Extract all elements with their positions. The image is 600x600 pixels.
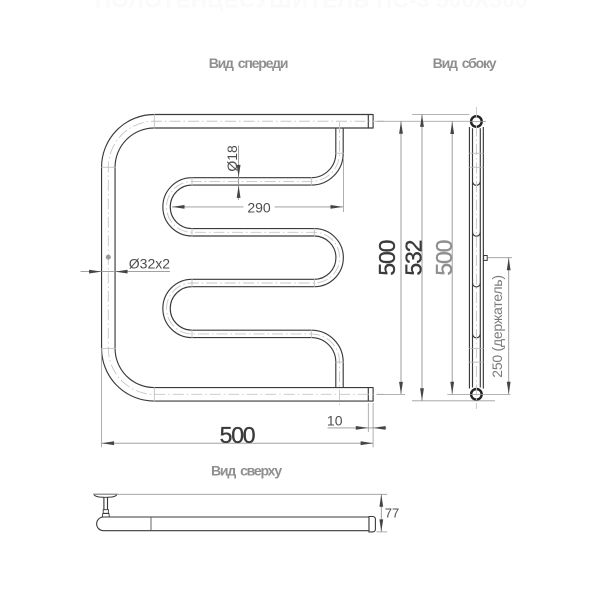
svg-text:500: 500 [374, 240, 400, 275]
svg-text:250 (держатель): 250 (держатель) [489, 275, 505, 377]
svg-text:ПОЛОТЕНЦЕСУШИТЕЛЬ ПС-3 500Х500: ПОЛОТЕНЦЕСУШИТЕЛЬ ПС-3 500Х500 [95, 0, 528, 13]
svg-text:77: 77 [385, 506, 399, 521]
svg-text:290: 290 [247, 200, 271, 216]
svg-text:Вид сбоку: Вид сбоку [433, 55, 497, 71]
svg-text:10: 10 [327, 413, 343, 429]
svg-text:Ø32x2: Ø32x2 [129, 255, 170, 271]
svg-text:532: 532 [400, 240, 426, 275]
svg-text:Ø18: Ø18 [224, 145, 240, 172]
svg-text:Вид сверху: Вид сверху [211, 463, 282, 479]
svg-text:Вид спереди: Вид спереди [209, 55, 288, 71]
svg-text:500: 500 [220, 422, 255, 448]
svg-text:500: 500 [431, 240, 457, 275]
